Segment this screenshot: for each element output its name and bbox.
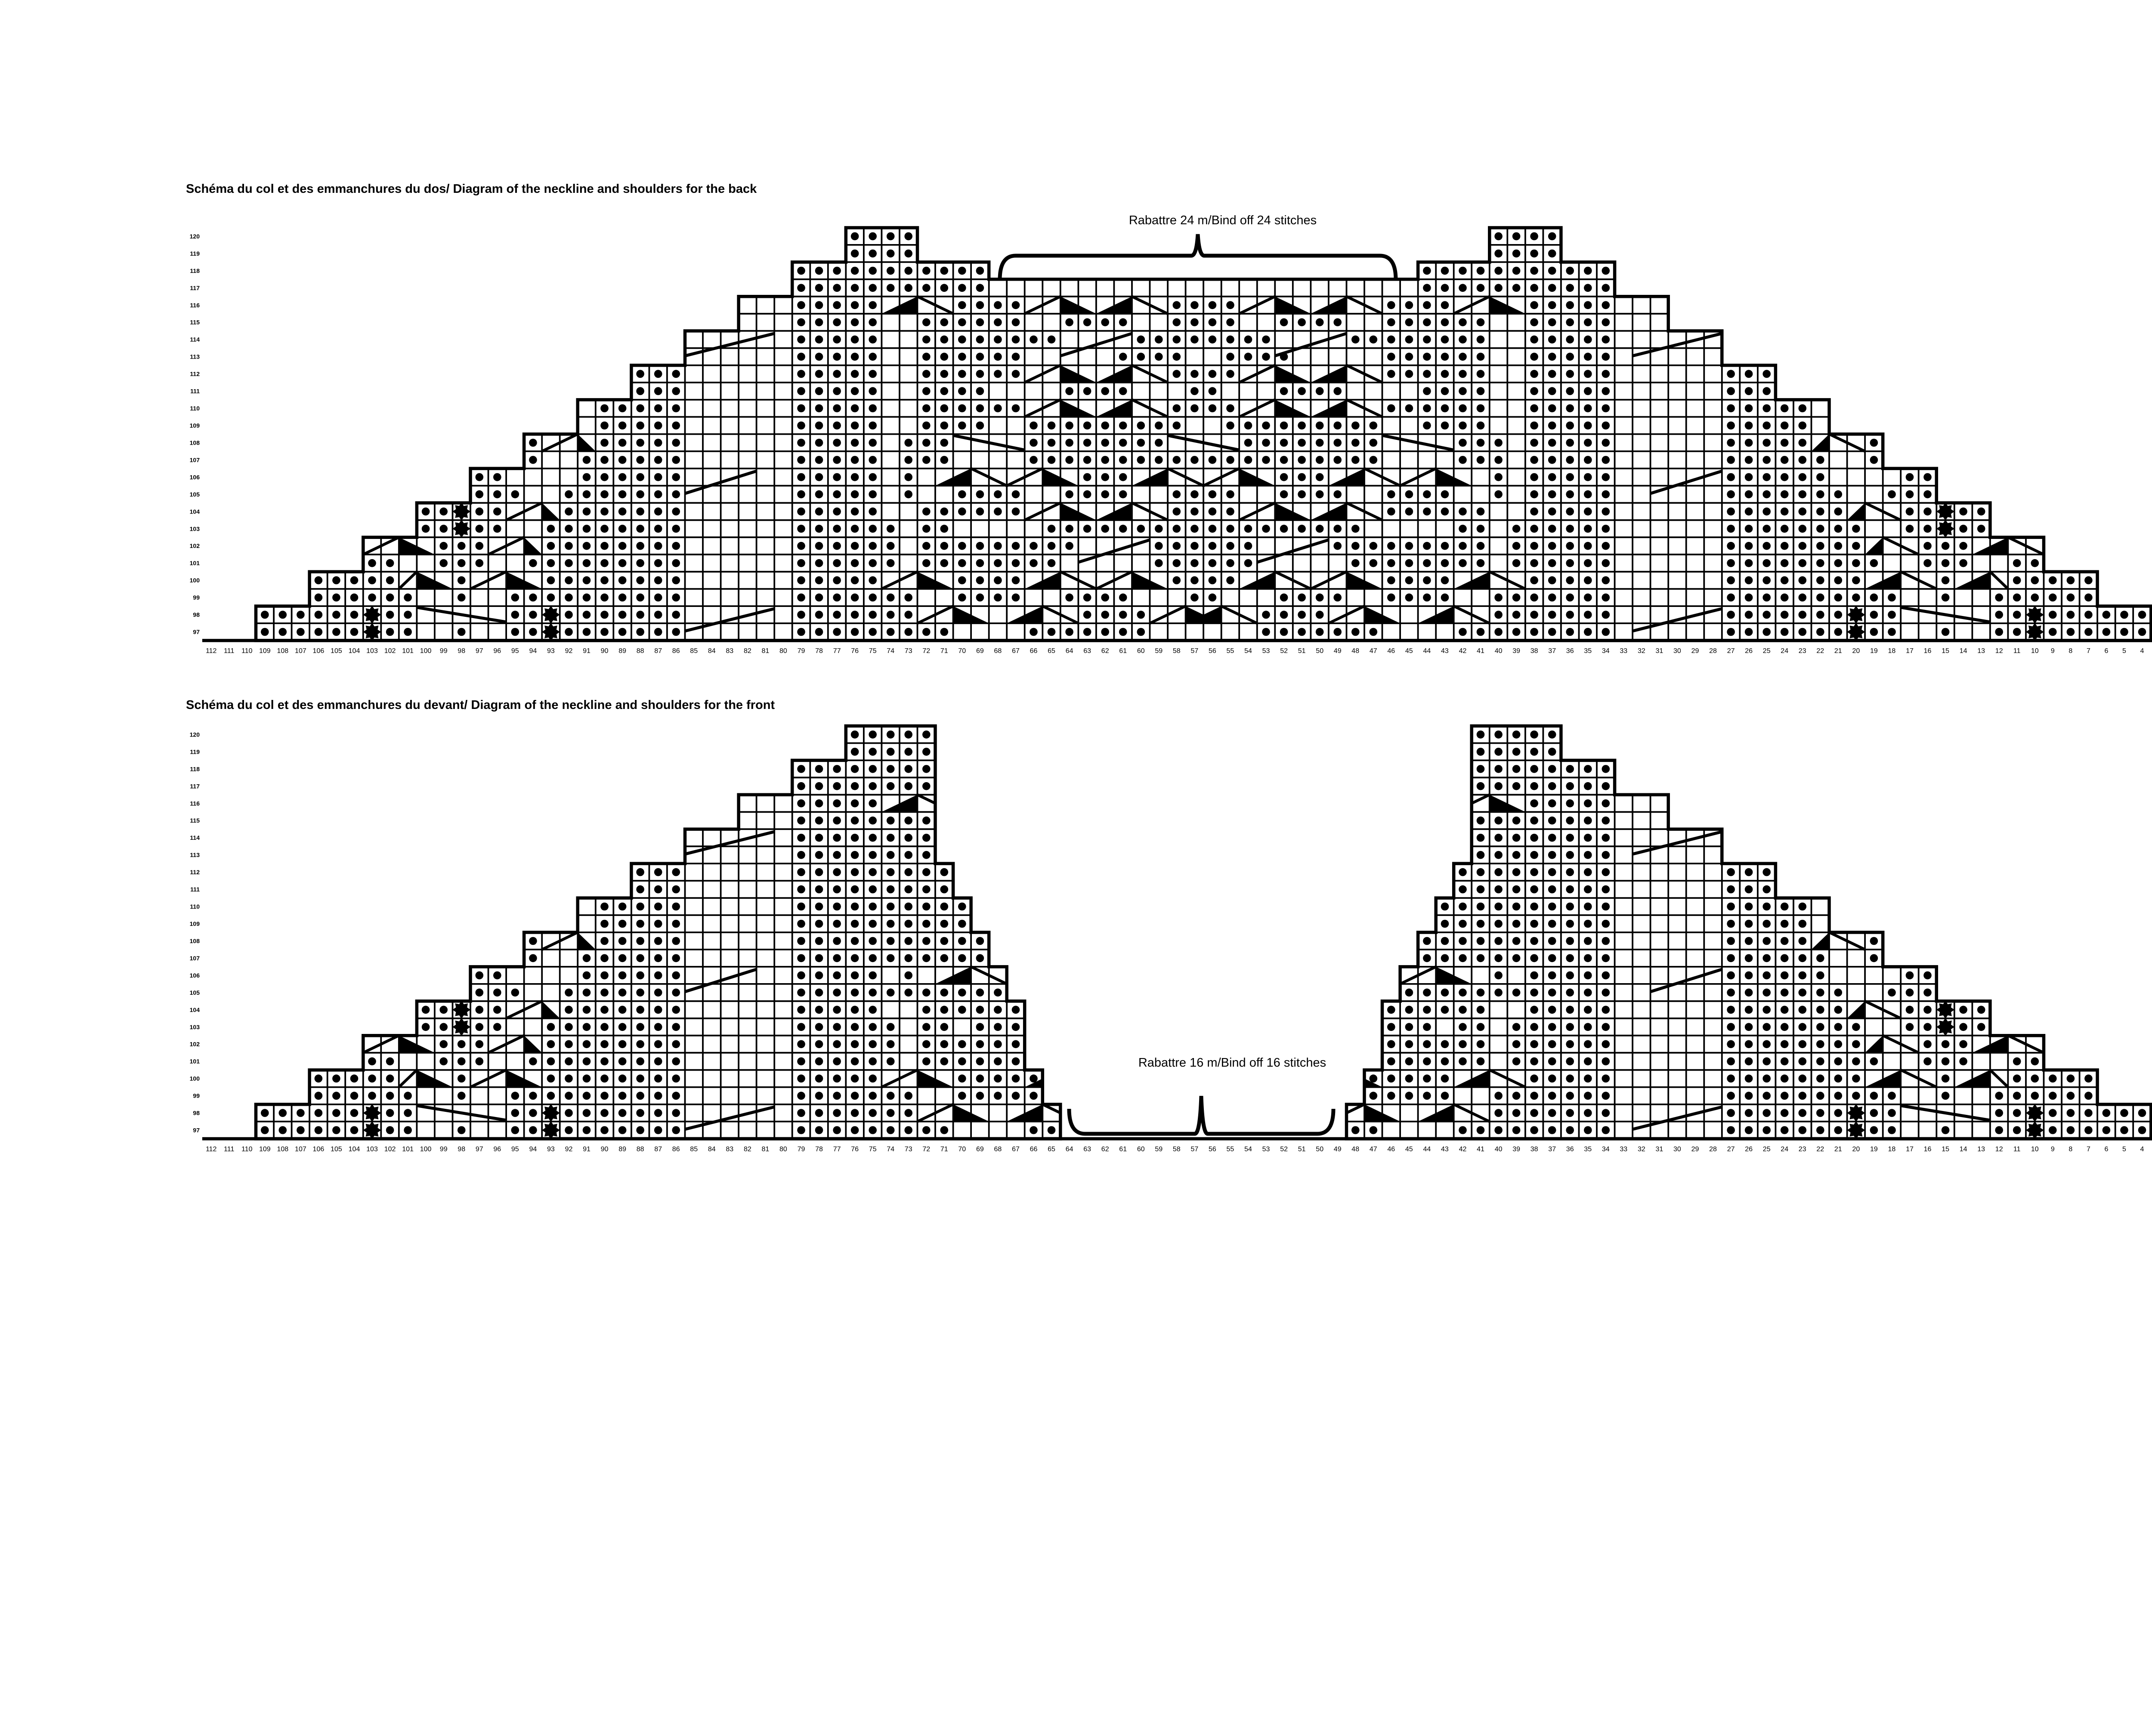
svg-text:107: 107 (190, 955, 200, 962)
svg-text:108: 108 (277, 1146, 288, 1153)
svg-text:82: 82 (744, 647, 751, 655)
svg-text:106: 106 (190, 473, 200, 480)
svg-text:111: 111 (190, 388, 200, 395)
svg-text:110: 110 (190, 903, 200, 910)
svg-text:Schéma du col et des emmanchur: Schéma du col et des emmanchures du deva… (186, 698, 775, 712)
svg-text:105: 105 (190, 989, 200, 996)
svg-text:78: 78 (815, 1146, 823, 1153)
svg-text:36: 36 (1566, 647, 1574, 655)
svg-text:18: 18 (1888, 1146, 1896, 1153)
svg-text:120: 120 (190, 233, 200, 240)
svg-text:105: 105 (331, 647, 342, 655)
svg-text:72: 72 (922, 647, 930, 655)
svg-text:23: 23 (1799, 647, 1806, 655)
svg-text:68: 68 (994, 1146, 1002, 1153)
svg-text:91: 91 (583, 647, 591, 655)
svg-text:112: 112 (206, 1146, 217, 1153)
svg-text:16: 16 (1924, 1146, 1932, 1153)
svg-text:22: 22 (1816, 1146, 1824, 1153)
svg-text:42: 42 (1459, 1146, 1467, 1153)
svg-text:104: 104 (349, 647, 360, 655)
svg-text:32: 32 (1638, 647, 1645, 655)
svg-text:52: 52 (1280, 1146, 1288, 1153)
svg-text:100: 100 (190, 1075, 200, 1082)
svg-text:83: 83 (726, 1146, 733, 1153)
svg-text:87: 87 (654, 647, 662, 655)
svg-text:103: 103 (366, 1146, 378, 1153)
svg-text:51: 51 (1298, 1146, 1306, 1153)
svg-text:87: 87 (654, 1146, 662, 1153)
svg-text:62: 62 (1101, 1146, 1109, 1153)
svg-text:56: 56 (1209, 647, 1216, 655)
svg-text:63: 63 (1083, 1146, 1091, 1153)
svg-text:100: 100 (420, 647, 432, 655)
svg-text:106: 106 (313, 647, 325, 655)
svg-text:97: 97 (476, 647, 483, 655)
svg-text:72: 72 (922, 1146, 930, 1153)
svg-text:25: 25 (1763, 647, 1771, 655)
svg-text:95: 95 (511, 647, 519, 655)
svg-text:86: 86 (672, 647, 680, 655)
svg-text:44: 44 (1423, 1146, 1431, 1153)
svg-text:21: 21 (1834, 1146, 1842, 1153)
svg-text:34: 34 (1602, 1146, 1610, 1153)
svg-text:40: 40 (1495, 1146, 1503, 1153)
svg-text:92: 92 (565, 1146, 573, 1153)
svg-text:102: 102 (384, 1146, 396, 1153)
svg-text:97: 97 (193, 628, 200, 635)
svg-text:45: 45 (1405, 647, 1413, 655)
svg-text:53: 53 (1262, 647, 1270, 655)
svg-text:45: 45 (1405, 1146, 1413, 1153)
svg-text:17: 17 (1906, 647, 1914, 655)
svg-text:18: 18 (1888, 647, 1896, 655)
svg-text:40: 40 (1495, 647, 1503, 655)
svg-text:86: 86 (672, 1146, 680, 1153)
svg-text:110: 110 (241, 647, 253, 655)
svg-text:23: 23 (1799, 1146, 1806, 1153)
svg-text:108: 108 (190, 439, 200, 446)
svg-text:110: 110 (241, 1146, 253, 1153)
svg-text:4: 4 (2140, 647, 2144, 655)
svg-text:52: 52 (1280, 647, 1288, 655)
svg-text:48: 48 (1351, 1146, 1359, 1153)
svg-text:109: 109 (190, 920, 200, 927)
svg-text:39: 39 (1512, 647, 1520, 655)
svg-text:80: 80 (779, 1146, 787, 1153)
svg-text:56: 56 (1209, 1146, 1216, 1153)
svg-text:85: 85 (690, 647, 698, 655)
svg-text:54: 54 (1244, 1146, 1252, 1153)
svg-text:117: 117 (190, 285, 200, 291)
svg-text:113: 113 (190, 353, 200, 360)
svg-text:89: 89 (618, 1146, 626, 1153)
svg-text:47: 47 (1370, 1146, 1377, 1153)
svg-text:118: 118 (190, 765, 200, 772)
svg-text:76: 76 (851, 647, 859, 655)
svg-text:51: 51 (1298, 647, 1306, 655)
svg-text:41: 41 (1477, 1146, 1484, 1153)
svg-text:59: 59 (1155, 1146, 1163, 1153)
svg-text:26: 26 (1745, 1146, 1753, 1153)
svg-text:7: 7 (2087, 1146, 2090, 1153)
svg-text:49: 49 (1334, 1146, 1342, 1153)
svg-text:46: 46 (1387, 647, 1395, 655)
svg-text:5: 5 (2122, 1146, 2126, 1153)
svg-text:71: 71 (940, 1146, 948, 1153)
svg-text:30: 30 (1673, 1146, 1681, 1153)
svg-text:32: 32 (1638, 1146, 1645, 1153)
svg-text:17: 17 (1906, 1146, 1914, 1153)
svg-text:50: 50 (1316, 1146, 1323, 1153)
svg-text:109: 109 (190, 422, 200, 429)
svg-text:37: 37 (1548, 647, 1556, 655)
svg-text:75: 75 (869, 1146, 877, 1153)
svg-text:19: 19 (1870, 1146, 1878, 1153)
svg-text:77: 77 (833, 1146, 841, 1153)
svg-text:101: 101 (402, 647, 414, 655)
svg-text:94: 94 (529, 647, 537, 655)
svg-text:38: 38 (1531, 1146, 1538, 1153)
svg-text:29: 29 (1691, 647, 1699, 655)
svg-text:97: 97 (476, 1146, 483, 1153)
svg-text:11: 11 (2013, 1146, 2021, 1153)
svg-text:79: 79 (798, 647, 805, 655)
svg-text:104: 104 (190, 1006, 200, 1013)
svg-text:67: 67 (1012, 1146, 1020, 1153)
svg-text:93: 93 (547, 1146, 555, 1153)
svg-text:58: 58 (1173, 1146, 1181, 1153)
svg-text:101: 101 (190, 560, 200, 566)
svg-text:62: 62 (1101, 647, 1109, 655)
svg-text:77: 77 (833, 647, 841, 655)
svg-text:96: 96 (493, 1146, 501, 1153)
svg-text:68: 68 (994, 647, 1002, 655)
svg-text:29: 29 (1691, 1146, 1699, 1153)
svg-text:71: 71 (940, 647, 948, 655)
svg-text:119: 119 (190, 748, 200, 755)
svg-text:33: 33 (1620, 647, 1627, 655)
svg-text:25: 25 (1763, 1146, 1771, 1153)
svg-text:88: 88 (637, 647, 644, 655)
svg-text:55: 55 (1227, 647, 1234, 655)
svg-text:112: 112 (190, 869, 200, 876)
svg-text:79: 79 (798, 1146, 805, 1153)
svg-text:12: 12 (1995, 647, 2003, 655)
svg-text:14: 14 (1960, 647, 1967, 655)
svg-text:54: 54 (1244, 647, 1252, 655)
svg-text:19: 19 (1870, 647, 1878, 655)
svg-text:33: 33 (1620, 1146, 1627, 1153)
svg-text:106: 106 (190, 972, 200, 979)
svg-text:101: 101 (190, 1058, 200, 1065)
svg-text:65: 65 (1048, 647, 1055, 655)
svg-text:16: 16 (1924, 647, 1932, 655)
svg-text:112: 112 (206, 647, 217, 655)
svg-text:95: 95 (511, 1146, 519, 1153)
svg-text:115: 115 (190, 319, 200, 326)
svg-text:111: 111 (224, 647, 234, 655)
svg-text:24: 24 (1781, 1146, 1788, 1153)
svg-text:107: 107 (190, 456, 200, 463)
svg-text:9: 9 (2051, 1146, 2055, 1153)
svg-text:112: 112 (190, 371, 200, 378)
svg-text:12: 12 (1995, 1146, 2003, 1153)
svg-text:46: 46 (1387, 1146, 1395, 1153)
svg-text:113: 113 (190, 851, 200, 858)
svg-text:74: 74 (887, 1146, 894, 1153)
svg-text:6: 6 (2104, 647, 2108, 655)
svg-text:13: 13 (1977, 647, 1985, 655)
svg-text:119: 119 (190, 250, 200, 257)
svg-text:Rabattre 24 m/Bind off 24 stit: Rabattre 24 m/Bind off 24 stitches (1129, 214, 1317, 227)
svg-text:69: 69 (976, 1146, 984, 1153)
svg-text:107: 107 (295, 1146, 306, 1153)
svg-text:73: 73 (905, 1146, 912, 1153)
svg-text:9: 9 (2051, 647, 2055, 655)
svg-text:22: 22 (1816, 647, 1824, 655)
svg-text:103: 103 (190, 1024, 200, 1030)
svg-text:100: 100 (420, 1146, 432, 1153)
svg-text:26: 26 (1745, 647, 1753, 655)
svg-text:93: 93 (547, 647, 555, 655)
svg-text:47: 47 (1370, 647, 1377, 655)
svg-text:43: 43 (1441, 647, 1449, 655)
svg-text:74: 74 (887, 647, 894, 655)
svg-text:70: 70 (958, 647, 966, 655)
svg-text:48: 48 (1351, 647, 1359, 655)
svg-text:13: 13 (1977, 1146, 1985, 1153)
svg-text:28: 28 (1709, 647, 1717, 655)
svg-text:69: 69 (976, 647, 984, 655)
svg-text:57: 57 (1191, 1146, 1199, 1153)
svg-text:64: 64 (1066, 1146, 1073, 1153)
svg-text:99: 99 (193, 594, 200, 601)
svg-text:55: 55 (1227, 1146, 1234, 1153)
svg-text:35: 35 (1584, 647, 1592, 655)
svg-text:98: 98 (193, 611, 200, 618)
svg-text:5: 5 (2122, 647, 2126, 655)
svg-text:30: 30 (1673, 647, 1681, 655)
svg-text:57: 57 (1191, 647, 1199, 655)
svg-text:91: 91 (583, 1146, 591, 1153)
svg-text:43: 43 (1441, 1146, 1449, 1153)
svg-text:102: 102 (384, 647, 396, 655)
svg-text:107: 107 (295, 647, 306, 655)
svg-text:97: 97 (193, 1127, 200, 1134)
svg-text:20: 20 (1852, 1146, 1860, 1153)
svg-text:61: 61 (1119, 647, 1127, 655)
svg-text:66: 66 (1030, 1146, 1038, 1153)
svg-text:101: 101 (402, 1146, 414, 1153)
svg-text:67: 67 (1012, 647, 1020, 655)
svg-text:78: 78 (815, 647, 823, 655)
svg-text:Schéma du col et des emmanchur: Schéma du col et des emmanchures du dos/… (186, 182, 757, 196)
svg-text:96: 96 (493, 647, 501, 655)
svg-text:88: 88 (637, 1146, 644, 1153)
svg-text:103: 103 (190, 525, 200, 532)
svg-text:92: 92 (565, 647, 573, 655)
svg-text:15: 15 (1942, 1146, 1949, 1153)
svg-text:117: 117 (190, 783, 200, 789)
svg-text:53: 53 (1262, 1146, 1270, 1153)
svg-text:110: 110 (190, 405, 200, 412)
svg-text:6: 6 (2104, 1146, 2108, 1153)
svg-text:73: 73 (905, 647, 912, 655)
svg-text:36: 36 (1566, 1146, 1574, 1153)
svg-text:99: 99 (440, 1146, 448, 1153)
svg-text:82: 82 (744, 1146, 751, 1153)
svg-text:10: 10 (2031, 647, 2039, 655)
svg-text:63: 63 (1083, 647, 1091, 655)
svg-text:4: 4 (2140, 1146, 2144, 1153)
svg-text:41: 41 (1477, 647, 1484, 655)
svg-text:50: 50 (1316, 647, 1323, 655)
svg-text:90: 90 (601, 647, 609, 655)
svg-text:35: 35 (1584, 1146, 1592, 1153)
svg-text:106: 106 (313, 1146, 325, 1153)
svg-text:102: 102 (190, 542, 200, 549)
svg-text:105: 105 (331, 1146, 342, 1153)
svg-text:102: 102 (190, 1041, 200, 1048)
svg-text:27: 27 (1727, 647, 1735, 655)
svg-text:80: 80 (779, 647, 787, 655)
svg-text:7: 7 (2087, 647, 2090, 655)
svg-text:116: 116 (190, 302, 200, 309)
svg-text:20: 20 (1852, 647, 1860, 655)
svg-text:109: 109 (259, 647, 271, 655)
svg-text:104: 104 (349, 1146, 360, 1153)
svg-text:31: 31 (1656, 647, 1663, 655)
svg-text:11: 11 (2013, 647, 2021, 655)
svg-text:10: 10 (2031, 1146, 2039, 1153)
svg-text:61: 61 (1119, 1146, 1127, 1153)
svg-text:111: 111 (190, 886, 200, 893)
svg-text:105: 105 (190, 491, 200, 498)
svg-text:84: 84 (708, 647, 716, 655)
svg-text:27: 27 (1727, 1146, 1735, 1153)
svg-text:66: 66 (1030, 647, 1038, 655)
svg-text:81: 81 (762, 1146, 770, 1153)
svg-text:111: 111 (224, 1146, 234, 1153)
svg-text:85: 85 (690, 1146, 698, 1153)
svg-text:98: 98 (458, 647, 465, 655)
svg-text:44: 44 (1423, 647, 1431, 655)
svg-text:8: 8 (2069, 1146, 2072, 1153)
svg-text:39: 39 (1512, 1146, 1520, 1153)
svg-text:81: 81 (762, 647, 770, 655)
svg-text:118: 118 (190, 267, 200, 274)
svg-text:76: 76 (851, 1146, 859, 1153)
svg-text:108: 108 (277, 647, 288, 655)
svg-text:64: 64 (1066, 647, 1073, 655)
svg-text:120: 120 (190, 731, 200, 738)
svg-text:114: 114 (190, 834, 200, 841)
svg-text:109: 109 (259, 1146, 271, 1153)
svg-text:108: 108 (190, 938, 200, 944)
svg-text:15: 15 (1942, 647, 1949, 655)
svg-text:114: 114 (190, 336, 200, 343)
svg-text:38: 38 (1531, 647, 1538, 655)
svg-text:8: 8 (2069, 647, 2072, 655)
svg-text:98: 98 (193, 1110, 200, 1117)
svg-text:49: 49 (1334, 647, 1342, 655)
svg-text:94: 94 (529, 1146, 537, 1153)
svg-text:98: 98 (458, 1146, 465, 1153)
svg-text:Rabattre 16 m/Bind off 16 stit: Rabattre 16 m/Bind off 16 stitches (1138, 1056, 1326, 1070)
svg-text:115: 115 (190, 817, 200, 824)
svg-text:59: 59 (1155, 647, 1163, 655)
svg-text:75: 75 (869, 647, 877, 655)
svg-text:104: 104 (190, 508, 200, 515)
svg-text:103: 103 (366, 647, 378, 655)
svg-text:60: 60 (1137, 1146, 1145, 1153)
svg-text:65: 65 (1048, 1146, 1055, 1153)
svg-text:21: 21 (1834, 647, 1842, 655)
svg-text:99: 99 (193, 1092, 200, 1099)
svg-text:89: 89 (618, 647, 626, 655)
svg-text:84: 84 (708, 1146, 716, 1153)
svg-text:37: 37 (1548, 1146, 1556, 1153)
svg-text:28: 28 (1709, 1146, 1717, 1153)
svg-text:34: 34 (1602, 647, 1610, 655)
svg-text:70: 70 (958, 1146, 966, 1153)
svg-text:116: 116 (190, 800, 200, 807)
svg-text:42: 42 (1459, 647, 1467, 655)
svg-text:83: 83 (726, 647, 733, 655)
svg-text:14: 14 (1960, 1146, 1967, 1153)
svg-text:90: 90 (601, 1146, 609, 1153)
svg-text:24: 24 (1781, 647, 1788, 655)
svg-text:58: 58 (1173, 647, 1181, 655)
svg-text:99: 99 (440, 647, 448, 655)
svg-text:31: 31 (1656, 1146, 1663, 1153)
svg-text:100: 100 (190, 577, 200, 584)
svg-text:60: 60 (1137, 647, 1145, 655)
